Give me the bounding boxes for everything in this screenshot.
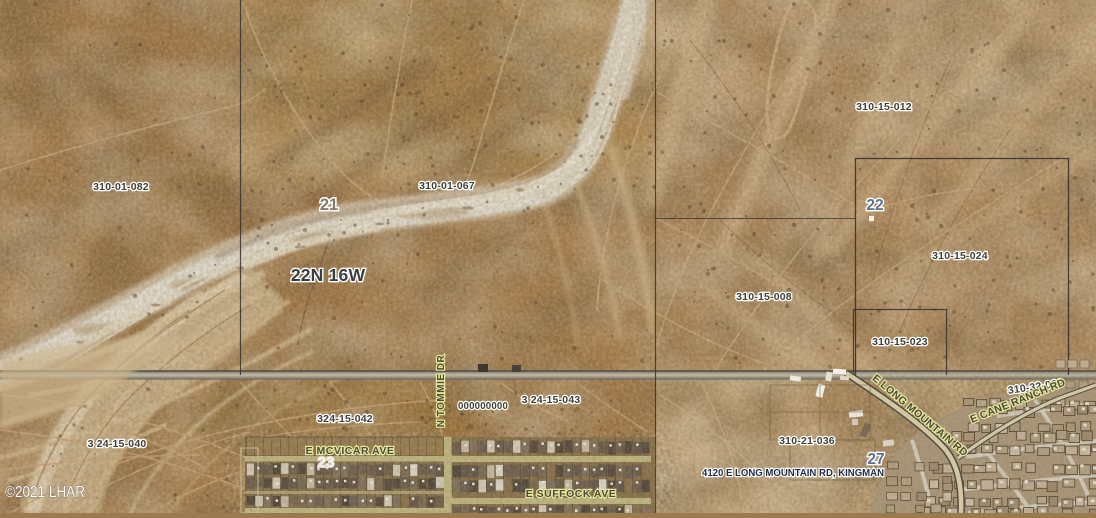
svg-text:22N 16W: 22N 16W [291, 265, 366, 285]
svg-text:324-15-042: 324-15-042 [317, 413, 373, 425]
svg-text:E MCVICAR AVE: E MCVICAR AVE [306, 445, 395, 457]
svg-text:3 24-15-040: 3 24-15-040 [88, 438, 147, 450]
svg-text:310-15-024: 310-15-024 [932, 250, 988, 262]
svg-text:000000000: 000000000 [458, 400, 508, 412]
svg-text:27: 27 [867, 451, 884, 468]
svg-text:22: 22 [866, 197, 883, 214]
svg-text:310-01-082: 310-01-082 [93, 181, 149, 193]
svg-text:310-21-036: 310-21-036 [779, 435, 835, 447]
svg-text:3 24-15-043: 3 24-15-043 [522, 394, 581, 406]
svg-text:21: 21 [320, 196, 338, 214]
svg-text:310-01-067: 310-01-067 [419, 180, 475, 192]
svg-text:E SUFFOCK AVE: E SUFFOCK AVE [526, 488, 617, 500]
svg-text:310-15-008: 310-15-008 [736, 291, 792, 303]
svg-text:4120 E LONG MOUNTAIN RD, KINGM: 4120 E LONG MOUNTAIN RD, KINGMAN [702, 467, 884, 479]
svg-text:N TOMMIE DR: N TOMMIE DR [436, 354, 447, 427]
svg-text:310-15-012: 310-15-012 [856, 101, 912, 113]
svg-text:310-15-023: 310-15-023 [872, 336, 928, 348]
svg-text:©2021 LHAR: ©2021 LHAR [5, 484, 85, 501]
